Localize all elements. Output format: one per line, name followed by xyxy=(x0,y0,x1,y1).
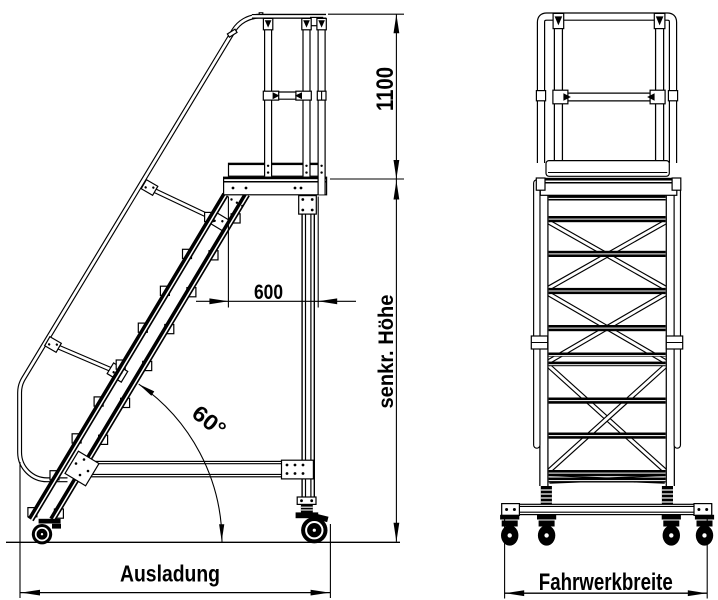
svg-text:1100: 1100 xyxy=(372,67,399,111)
svg-text:senkr. Höhe: senkr. Höhe xyxy=(374,294,398,408)
svg-text:600: 600 xyxy=(254,281,283,304)
svg-text:Fahrwerkbreite: Fahrwerkbreite xyxy=(539,569,673,596)
svg-text:Ausladung: Ausladung xyxy=(120,561,220,587)
